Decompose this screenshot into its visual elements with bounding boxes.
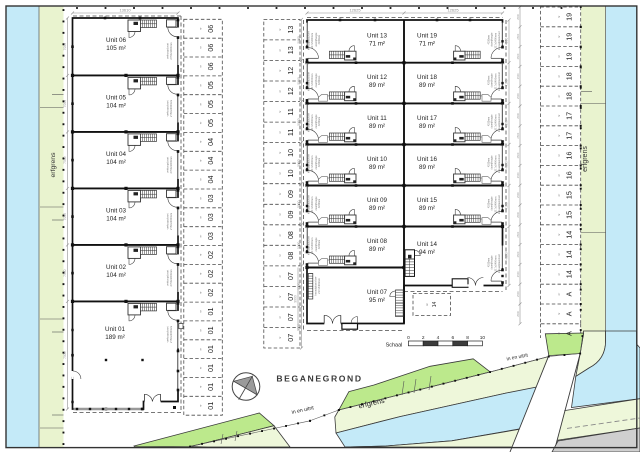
svg-text:nr: nr bbox=[199, 122, 203, 125]
svg-text:nr: nr bbox=[557, 55, 561, 58]
svg-text:Unit 11: Unit 11 bbox=[367, 115, 387, 122]
svg-text:Unit 12: Unit 12 bbox=[367, 74, 387, 81]
svg-text:07: 07 bbox=[286, 272, 295, 280]
svg-text:12625: 12625 bbox=[349, 8, 361, 13]
svg-text:doorrijhoogte: doorrijhoogte bbox=[491, 155, 494, 170]
svg-text:nr: nr bbox=[199, 404, 203, 407]
svg-text:89 m²: 89 m² bbox=[419, 123, 435, 130]
svg-text:4200mm: 4200mm bbox=[318, 240, 321, 249]
svg-text:217x5400mm: 217x5400mm bbox=[317, 278, 321, 294]
svg-text:nr: nr bbox=[557, 233, 561, 236]
svg-text:217x5400mm: 217x5400mm bbox=[494, 33, 498, 49]
svg-text:nr: nr bbox=[199, 386, 203, 389]
svg-text:217x5400mm: 217x5400mm bbox=[494, 256, 498, 272]
svg-text:15: 15 bbox=[565, 191, 574, 199]
svg-text:217x5400mm: 217x5400mm bbox=[310, 115, 314, 131]
svg-text:nr: nr bbox=[278, 316, 282, 319]
svg-text:4100: 4100 bbox=[505, 161, 509, 169]
svg-text:2500: 2500 bbox=[516, 211, 520, 217]
svg-text:2: 2 bbox=[422, 335, 425, 341]
svg-text:12625: 12625 bbox=[447, 8, 459, 13]
svg-text:71 m²: 71 m² bbox=[369, 40, 385, 47]
svg-text:03: 03 bbox=[206, 194, 215, 202]
svg-text:14: 14 bbox=[432, 302, 438, 308]
svg-text:verkoopcloset: verkoopcloset bbox=[166, 213, 170, 229]
svg-text:BEGANEGROND: BEGANEGROND bbox=[276, 374, 362, 384]
svg-text:06: 06 bbox=[206, 62, 215, 70]
svg-text:16: 16 bbox=[565, 152, 574, 160]
svg-text:13: 13 bbox=[286, 26, 295, 34]
svg-text:19: 19 bbox=[565, 13, 574, 21]
svg-text:nr: nr bbox=[557, 313, 561, 316]
svg-text:4200mm: 4200mm bbox=[488, 117, 491, 126]
svg-text:kanaalplaatvloer: kanaalplaatvloer bbox=[314, 276, 318, 295]
svg-text:nr: nr bbox=[199, 46, 203, 49]
svg-text:7000: 7000 bbox=[63, 156, 67, 164]
svg-text:nr: nr bbox=[278, 172, 282, 175]
svg-text:nr: nr bbox=[278, 131, 282, 134]
svg-text:kanaalplaatvloer: kanaalplaatvloer bbox=[497, 254, 501, 273]
svg-text:07: 07 bbox=[286, 334, 295, 342]
svg-text:12: 12 bbox=[286, 87, 295, 95]
svg-text:5000: 5000 bbox=[297, 77, 301, 85]
svg-text:A: A bbox=[565, 311, 574, 316]
svg-text:Unit 02: Unit 02 bbox=[106, 264, 126, 271]
svg-text:89 m²: 89 m² bbox=[369, 205, 385, 212]
svg-text:nr: nr bbox=[557, 332, 561, 335]
svg-text:nr: nr bbox=[557, 293, 561, 296]
svg-text:2500: 2500 bbox=[516, 172, 520, 178]
svg-text:nr: nr bbox=[199, 348, 203, 351]
svg-text:Unit 06: Unit 06 bbox=[106, 37, 126, 44]
svg-text:4200mm: 4200mm bbox=[318, 117, 321, 126]
svg-text:2500: 2500 bbox=[516, 310, 520, 316]
svg-text:2750x3000mm: 2750x3000mm bbox=[169, 213, 173, 230]
svg-text:4200mm: 4200mm bbox=[488, 76, 491, 85]
svg-text:nr: nr bbox=[426, 303, 429, 305]
svg-text:11: 11 bbox=[286, 108, 295, 115]
svg-text:4100: 4100 bbox=[505, 38, 509, 46]
svg-text:nr: nr bbox=[199, 216, 203, 219]
svg-text:nr: nr bbox=[199, 272, 203, 275]
svg-text:5000: 5000 bbox=[297, 324, 301, 332]
svg-text:nr: nr bbox=[199, 235, 203, 238]
svg-text:nr: nr bbox=[199, 65, 203, 68]
svg-text:A: A bbox=[565, 291, 574, 296]
svg-text:7000: 7000 bbox=[63, 213, 67, 221]
svg-text:nr: nr bbox=[557, 194, 561, 197]
svg-text:17: 17 bbox=[565, 132, 574, 140]
svg-text:2500: 2500 bbox=[516, 73, 520, 79]
svg-text:5000: 5000 bbox=[297, 283, 301, 291]
svg-text:nr: nr bbox=[199, 197, 203, 200]
svg-text:17: 17 bbox=[565, 112, 574, 120]
svg-text:nr: nr bbox=[557, 16, 561, 19]
svg-text:Unit 15: Unit 15 bbox=[417, 197, 437, 204]
svg-text:Unit 17: Unit 17 bbox=[417, 115, 437, 122]
svg-text:12: 12 bbox=[286, 67, 295, 75]
svg-text:217x5400mm: 217x5400mm bbox=[310, 238, 314, 254]
svg-text:71 m²: 71 m² bbox=[419, 40, 435, 47]
svg-text:Unit 10: Unit 10 bbox=[367, 156, 387, 163]
svg-text:nr: nr bbox=[199, 159, 203, 162]
svg-text:Unit 08: Unit 08 bbox=[367, 238, 387, 245]
svg-text:01: 01 bbox=[206, 307, 215, 315]
svg-text:nr: nr bbox=[557, 35, 561, 38]
svg-text:Unit 13: Unit 13 bbox=[367, 32, 387, 39]
svg-text:Unit 14: Unit 14 bbox=[417, 241, 437, 248]
svg-text:nr: nr bbox=[557, 154, 561, 157]
svg-text:4200mm: 4200mm bbox=[488, 35, 491, 44]
svg-text:4100: 4100 bbox=[505, 120, 509, 128]
svg-text:4: 4 bbox=[437, 335, 440, 341]
svg-text:Unit 19: Unit 19 bbox=[417, 32, 437, 39]
svg-text:217x5400mm: 217x5400mm bbox=[310, 156, 314, 172]
svg-text:4200mm: 4200mm bbox=[488, 158, 491, 167]
svg-text:217x5400mm: 217x5400mm bbox=[310, 74, 314, 90]
svg-text:15: 15 bbox=[565, 211, 574, 219]
svg-text:4200mm: 4200mm bbox=[488, 258, 491, 267]
svg-text:2500: 2500 bbox=[516, 291, 520, 297]
svg-text:nr: nr bbox=[557, 253, 561, 256]
svg-text:2500: 2500 bbox=[516, 271, 520, 277]
svg-text:5000: 5000 bbox=[297, 200, 301, 208]
svg-text:verkoopcloset: verkoopcloset bbox=[166, 157, 170, 173]
svg-text:89 m²: 89 m² bbox=[369, 246, 385, 253]
svg-text:01: 01 bbox=[206, 326, 215, 334]
svg-text:2500: 2500 bbox=[516, 132, 520, 138]
svg-text:09: 09 bbox=[286, 211, 295, 219]
svg-text:2750x3000mm: 2750x3000mm bbox=[169, 156, 173, 173]
svg-text:4200mm: 4200mm bbox=[318, 199, 321, 208]
svg-text:2500: 2500 bbox=[516, 231, 520, 237]
svg-text:doorrijhoogte: doorrijhoogte bbox=[491, 114, 494, 129]
svg-text:2750x3000mm: 2750x3000mm bbox=[169, 42, 173, 59]
svg-text:4200mm: 4200mm bbox=[318, 76, 321, 85]
svg-text:2500: 2500 bbox=[516, 192, 520, 198]
svg-text:kanaalplaatvloer: kanaalplaatvloer bbox=[497, 113, 501, 132]
svg-text:erfgrens: erfgrens bbox=[50, 152, 57, 178]
svg-text:verkoopcloset: verkoopcloset bbox=[166, 43, 170, 59]
svg-text:13: 13 bbox=[286, 46, 295, 54]
svg-text:01: 01 bbox=[206, 383, 215, 391]
svg-text:Schaal: Schaal bbox=[386, 343, 403, 349]
svg-text:89 m²: 89 m² bbox=[369, 123, 385, 130]
svg-text:01: 01 bbox=[206, 345, 215, 353]
svg-text:nr: nr bbox=[199, 367, 203, 370]
svg-text:nr: nr bbox=[199, 84, 203, 87]
svg-text:nr: nr bbox=[278, 275, 282, 278]
svg-text:nr: nr bbox=[278, 49, 282, 52]
svg-text:4200mm: 4200mm bbox=[318, 35, 321, 44]
svg-text:06: 06 bbox=[206, 25, 215, 33]
svg-text:10: 10 bbox=[286, 149, 295, 157]
svg-text:89 m²: 89 m² bbox=[419, 164, 435, 171]
svg-text:verkoopcloset: verkoopcloset bbox=[166, 100, 170, 116]
svg-text:nr: nr bbox=[278, 254, 282, 257]
svg-text:Unit 09: Unit 09 bbox=[367, 197, 387, 204]
svg-text:02: 02 bbox=[206, 289, 215, 297]
svg-text:217x5400mm: 217x5400mm bbox=[494, 156, 498, 172]
svg-text:doorrijhoogte: doorrijhoogte bbox=[491, 255, 494, 270]
svg-text:Unit 18: Unit 18 bbox=[417, 74, 437, 81]
svg-text:01: 01 bbox=[206, 402, 215, 410]
svg-text:nr: nr bbox=[199, 178, 203, 181]
svg-text:07: 07 bbox=[286, 313, 295, 321]
svg-text:2750x3000mm: 2750x3000mm bbox=[169, 100, 173, 117]
svg-text:4100: 4100 bbox=[505, 79, 509, 87]
svg-text:2500: 2500 bbox=[516, 152, 520, 158]
svg-text:18: 18 bbox=[565, 72, 574, 80]
svg-text:6: 6 bbox=[451, 335, 454, 341]
svg-text:nr: nr bbox=[557, 75, 561, 78]
svg-text:4200mm: 4200mm bbox=[318, 158, 321, 167]
svg-text:95 m²: 95 m² bbox=[369, 297, 385, 304]
svg-text:11: 11 bbox=[286, 129, 295, 136]
svg-text:9000: 9000 bbox=[294, 295, 298, 303]
svg-text:Unit 05: Unit 05 bbox=[106, 94, 126, 101]
svg-text:04: 04 bbox=[206, 157, 215, 165]
svg-text:04: 04 bbox=[206, 176, 215, 184]
svg-text:05: 05 bbox=[206, 119, 215, 127]
svg-text:Unit 01: Unit 01 bbox=[105, 326, 125, 333]
svg-text:08: 08 bbox=[286, 231, 295, 239]
svg-text:nr: nr bbox=[199, 310, 203, 313]
svg-text:nr: nr bbox=[278, 336, 282, 339]
svg-text:5000: 5000 bbox=[297, 159, 301, 167]
svg-text:4200mm: 4200mm bbox=[488, 199, 491, 208]
svg-text:217x5400mm: 217x5400mm bbox=[310, 33, 314, 49]
svg-text:nr: nr bbox=[199, 141, 203, 144]
svg-text:Unit 03: Unit 03 bbox=[106, 207, 126, 214]
svg-text:2500: 2500 bbox=[516, 33, 520, 39]
svg-text:nr: nr bbox=[278, 295, 282, 298]
svg-text:doorrijhoogte: doorrijhoogte bbox=[491, 32, 494, 47]
svg-text:05: 05 bbox=[206, 100, 215, 108]
svg-text:03: 03 bbox=[206, 232, 215, 240]
svg-text:verkoopcloset: verkoopcloset bbox=[166, 270, 170, 286]
svg-text:nr: nr bbox=[557, 134, 561, 137]
svg-text:14: 14 bbox=[565, 270, 574, 278]
svg-text:5000: 5000 bbox=[297, 36, 301, 44]
svg-text:5000: 5000 bbox=[297, 241, 301, 249]
svg-text:19: 19 bbox=[565, 53, 574, 61]
svg-text:02: 02 bbox=[206, 270, 215, 278]
svg-text:nr: nr bbox=[278, 234, 282, 237]
svg-text:14: 14 bbox=[565, 231, 574, 239]
svg-text:04: 04 bbox=[206, 138, 215, 146]
svg-text:217x5400mm: 217x5400mm bbox=[494, 197, 498, 213]
svg-text:nr: nr bbox=[557, 115, 561, 118]
svg-text:nr: nr bbox=[199, 291, 203, 294]
svg-text:89 m²: 89 m² bbox=[369, 82, 385, 89]
svg-text:10: 10 bbox=[286, 169, 295, 177]
svg-text:nr: nr bbox=[278, 111, 282, 114]
svg-text:16: 16 bbox=[565, 171, 574, 179]
svg-text:10: 10 bbox=[480, 335, 486, 341]
svg-text:18: 18 bbox=[565, 92, 574, 100]
svg-text:nr: nr bbox=[278, 193, 282, 196]
svg-text:19: 19 bbox=[565, 33, 574, 41]
svg-text:4100: 4100 bbox=[505, 252, 509, 260]
svg-text:4100: 4100 bbox=[505, 202, 509, 210]
svg-text:nr: nr bbox=[278, 213, 282, 216]
svg-text:05: 05 bbox=[206, 81, 215, 89]
svg-text:doorrijhoogte: doorrijhoogte bbox=[491, 73, 494, 88]
svg-text:A: A bbox=[565, 331, 574, 336]
svg-text:01: 01 bbox=[206, 364, 215, 372]
svg-text:89 m²: 89 m² bbox=[369, 164, 385, 171]
svg-text:2500: 2500 bbox=[516, 112, 520, 118]
svg-text:2750x3000mm: 2750x3000mm bbox=[169, 269, 173, 286]
svg-text:kanaalplaatvloer: kanaalplaatvloer bbox=[497, 195, 501, 214]
svg-text:104 m²: 104 m² bbox=[106, 215, 126, 222]
svg-text:2750x3000mm: 2750x3000mm bbox=[169, 326, 173, 343]
svg-text:5000: 5000 bbox=[297, 118, 301, 126]
svg-text:Unit 07: Unit 07 bbox=[367, 289, 387, 296]
svg-text:nr: nr bbox=[199, 254, 203, 257]
svg-text:06: 06 bbox=[206, 44, 215, 52]
svg-text:2500: 2500 bbox=[516, 93, 520, 99]
svg-text:nr: nr bbox=[557, 273, 561, 276]
svg-text:2500: 2500 bbox=[516, 53, 520, 59]
svg-text:8: 8 bbox=[466, 335, 469, 341]
svg-text:0: 0 bbox=[407, 335, 410, 341]
svg-text:nr: nr bbox=[199, 27, 203, 30]
svg-text:09: 09 bbox=[286, 190, 295, 198]
svg-text:217x5400mm: 217x5400mm bbox=[494, 74, 498, 90]
svg-text:erfgrens: erfgrens bbox=[582, 146, 589, 172]
svg-text:nr: nr bbox=[199, 103, 203, 106]
svg-text:nr: nr bbox=[278, 28, 282, 31]
svg-text:217x5400mm: 217x5400mm bbox=[494, 115, 498, 131]
svg-text:89 m²: 89 m² bbox=[419, 205, 435, 212]
svg-text:14: 14 bbox=[565, 251, 574, 259]
svg-text:189 m²: 189 m² bbox=[105, 334, 125, 341]
svg-text:nr: nr bbox=[557, 95, 561, 98]
svg-text:94 m²: 94 m² bbox=[419, 249, 435, 256]
svg-text:doorrijhoogte: doorrijhoogte bbox=[491, 196, 494, 211]
svg-text:nr: nr bbox=[199, 329, 203, 332]
svg-text:89 m²: 89 m² bbox=[419, 82, 435, 89]
svg-text:verkoopcloset: verkoopcloset bbox=[166, 326, 170, 342]
svg-text:104 m²: 104 m² bbox=[106, 102, 126, 109]
svg-text:Unit 16: Unit 16 bbox=[417, 156, 437, 163]
svg-text:2500: 2500 bbox=[516, 251, 520, 257]
svg-text:02: 02 bbox=[206, 251, 215, 259]
svg-text:104 m²: 104 m² bbox=[106, 159, 126, 166]
svg-text:nr: nr bbox=[278, 152, 282, 155]
svg-text:Unit 04: Unit 04 bbox=[106, 151, 126, 158]
svg-text:nr: nr bbox=[557, 214, 561, 217]
svg-text:kanaalplaatvloer: kanaalplaatvloer bbox=[497, 154, 501, 173]
svg-text:13610: 13610 bbox=[119, 8, 131, 13]
svg-text:nr: nr bbox=[278, 69, 282, 72]
svg-text:08: 08 bbox=[286, 252, 295, 260]
svg-text:2500: 2500 bbox=[516, 13, 520, 19]
svg-text:03: 03 bbox=[206, 213, 215, 221]
svg-text:nr: nr bbox=[278, 90, 282, 93]
svg-text:104 m²: 104 m² bbox=[106, 272, 126, 279]
svg-text:105 m²: 105 m² bbox=[106, 45, 126, 52]
svg-text:217x5400mm: 217x5400mm bbox=[310, 197, 314, 213]
svg-text:nr: nr bbox=[557, 174, 561, 177]
